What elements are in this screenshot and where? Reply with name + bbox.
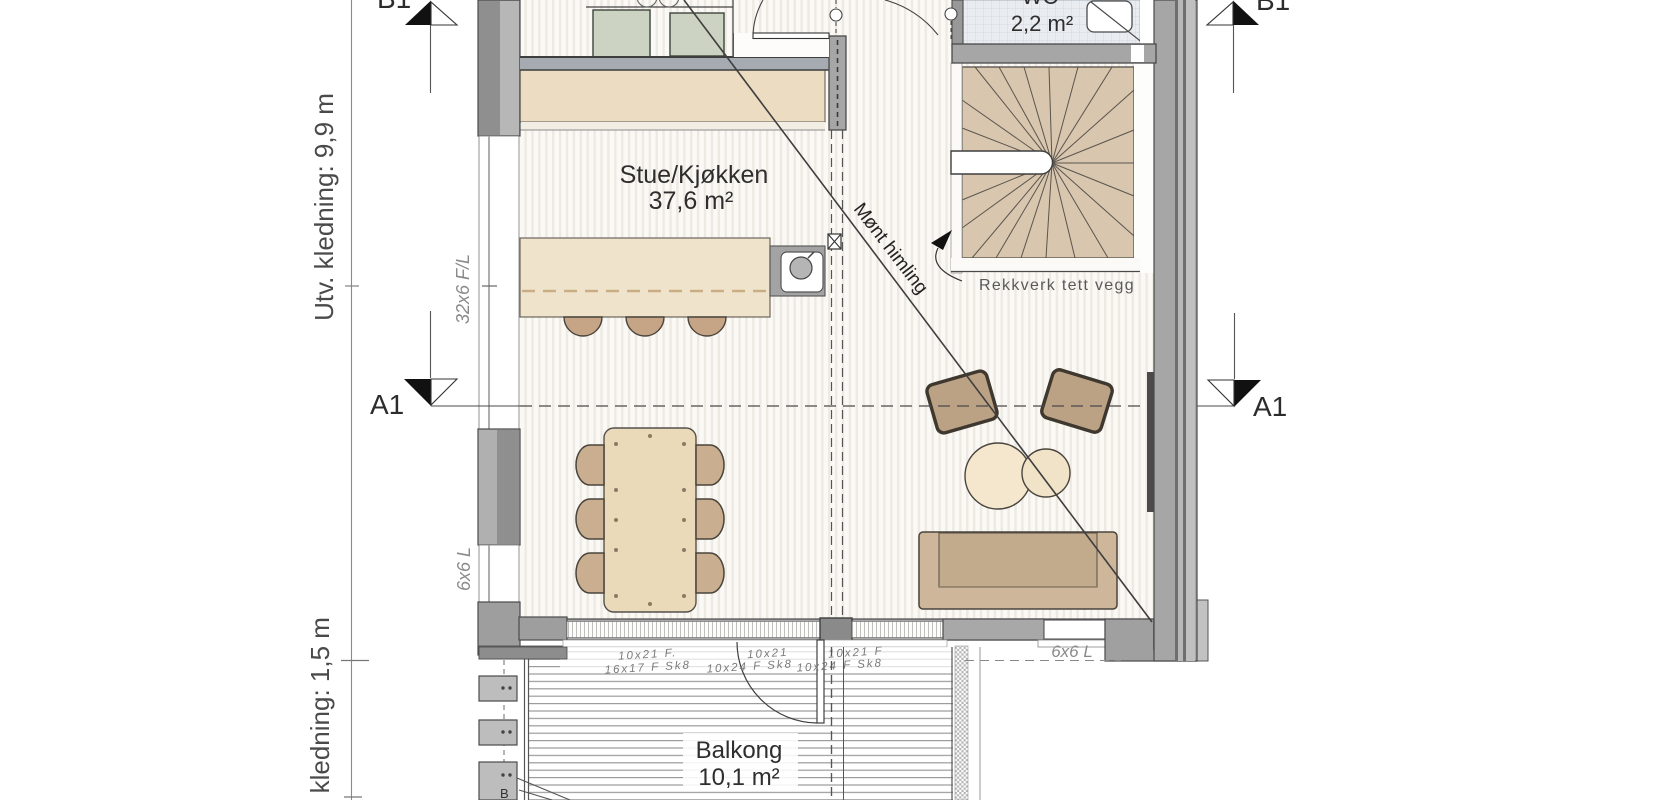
svg-text:6x6 L: 6x6 L: [454, 547, 474, 591]
svg-text:B1: B1: [377, 0, 411, 14]
svg-text:A1: A1: [1253, 391, 1287, 422]
svg-text:6x6 L: 6x6 L: [1051, 642, 1093, 661]
svg-text:Utv. kledning: 9,9 m: Utv. kledning: 9,9 m: [309, 93, 339, 321]
svg-text:A1: A1: [370, 389, 404, 420]
svg-text:10,1 m²: 10,1 m²: [698, 764, 779, 791]
svg-text:Rekkverk tett vegg: Rekkverk tett vegg: [979, 277, 1135, 294]
svg-text:B1: B1: [1256, 0, 1290, 16]
svg-text:B: B: [500, 786, 509, 800]
svg-text:2,2 m²: 2,2 m²: [1011, 11, 1073, 36]
svg-text:WC: WC: [1022, 0, 1059, 9]
svg-text:Balkong: Balkong: [696, 737, 783, 764]
svg-text:37,6 m²: 37,6 m²: [649, 187, 734, 215]
svg-text:32x6 F/L: 32x6 F/L: [453, 254, 473, 324]
svg-text:Stue/Kjøkken: Stue/Kjøkken: [620, 161, 769, 189]
svg-text:Utv. kledning: 1,5 m: Utv. kledning: 1,5 m: [305, 617, 335, 800]
